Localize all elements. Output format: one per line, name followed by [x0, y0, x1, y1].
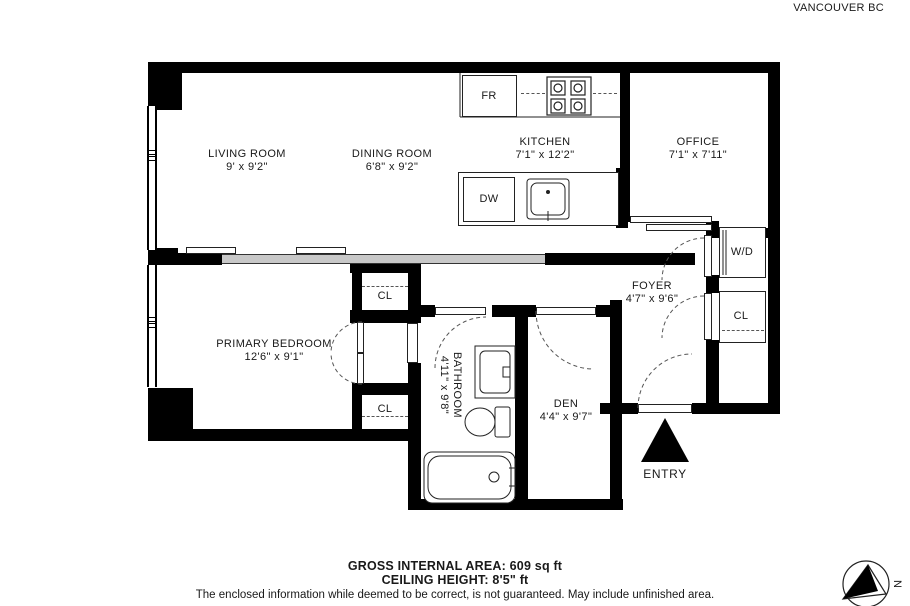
room-label-foyer: FOYER 4'7" x 9'6" [626, 280, 679, 306]
room-label-primary-bedroom: PRIMARY BEDROOM 12'6" x 9'1" [216, 338, 332, 364]
wall [515, 305, 528, 510]
room-label-dining: DINING ROOM 6'8" x 9'2" [352, 148, 432, 174]
sliding-panel [296, 247, 346, 254]
fridge-label: FR [481, 90, 496, 102]
wall [706, 275, 719, 293]
wall [148, 62, 780, 73]
stove-icon [547, 77, 591, 115]
upper-cabinet-line [521, 93, 545, 94]
window [147, 265, 157, 387]
address-line2: VANCOUVER BC [735, 2, 884, 14]
wall [408, 499, 623, 510]
footer-summary: GROSS INTERNAL AREA: 609 sq ft CEILING H… [0, 560, 910, 587]
window-mullion [149, 150, 155, 155]
closet-rail [362, 416, 408, 417]
window-mullion [149, 323, 155, 328]
entry-arrow-icon [641, 418, 689, 462]
room-dims: 12'6" x 9'1" [216, 351, 332, 364]
room-label-den: DEN 4'4" x 9'7" [540, 398, 593, 424]
washer-dryer-label: W/D [731, 246, 753, 258]
dishwasher-label: DW [480, 193, 499, 205]
room-name: LIVING ROOM [208, 148, 286, 161]
door-threshold [435, 307, 486, 315]
upper-cabinet-line [593, 93, 617, 94]
entry-label: ENTRY [643, 467, 686, 481]
room-name: OFFICE [669, 136, 727, 149]
room-name: PRIMARY BEDROOM [216, 338, 332, 351]
closet-label: CL [734, 310, 749, 322]
wall [185, 429, 360, 441]
room-name: DINING ROOM [352, 148, 432, 161]
disclaimer-text: The enclosed information while deemed to… [0, 589, 910, 601]
wall [545, 253, 695, 265]
room-dims: 6'8" x 9'2" [352, 161, 432, 174]
room-label-kitchen: KITCHEN 7'1" x 12'2" [515, 136, 574, 162]
sliding-partition [222, 254, 545, 264]
closet-rail [722, 330, 764, 331]
gross-area-text: GROSS INTERNAL AREA: 609 sq ft [0, 560, 910, 574]
room-dims: 9' x 9'2" [208, 161, 286, 174]
room-label-office: OFFICE 7'1" x 7'11" [669, 136, 727, 162]
door-leaf [357, 322, 364, 353]
room-dims: 4'11" x 9'8" [437, 352, 450, 418]
ceiling-height-text: CEILING HEIGHT: 8'5" ft [0, 574, 910, 588]
wall [408, 363, 421, 383]
room-name: FOYER [626, 280, 679, 293]
wall [156, 253, 222, 265]
door-leaf [357, 353, 364, 384]
pocket-door [407, 323, 418, 363]
door-leaf [704, 235, 712, 277]
wall [706, 340, 719, 413]
wall [148, 62, 182, 110]
room-dims: 4'7" x 9'6" [626, 293, 679, 306]
door-leaf [704, 293, 712, 340]
window-mullion [149, 156, 155, 161]
room-dims: 7'1" x 7'11" [669, 149, 727, 162]
sliding-panel [646, 224, 712, 231]
room-name: KITCHEN [515, 136, 574, 149]
sliding-panel [186, 247, 236, 254]
wall [768, 62, 780, 414]
wall [492, 305, 536, 317]
closet-label: CL [378, 403, 393, 415]
wall [600, 403, 638, 414]
room-name: DEN [540, 398, 593, 411]
wall [352, 429, 420, 441]
vanity-sink-icon [475, 346, 515, 398]
wall [148, 388, 193, 441]
wall [408, 305, 435, 317]
room-dims: 4'4" x 9'7" [540, 411, 593, 424]
north-label: N [891, 580, 903, 588]
closet-rail [362, 286, 408, 287]
toilet-icon [465, 407, 510, 437]
floorplan-page: #417 - 1122 HOWE STREET VANCOUVER BC [0, 0, 910, 606]
sliding-panel [630, 216, 712, 223]
window [147, 106, 157, 250]
room-label-living: LIVING ROOM 9' x 9'2" [208, 148, 286, 174]
room-label-bathroom: BATHROOM 4'11" x 9'8" [437, 352, 463, 418]
door-threshold [536, 307, 596, 315]
bathtub-icon [424, 452, 516, 503]
closet-label: CL [378, 290, 393, 302]
window-mullion [149, 317, 155, 322]
room-dims: 7'1" x 12'2" [515, 149, 574, 162]
address-block: #417 - 1122 HOWE STREET VANCOUVER BC [735, 0, 884, 14]
door-threshold [638, 404, 692, 413]
room-name: BATHROOM [450, 352, 463, 418]
